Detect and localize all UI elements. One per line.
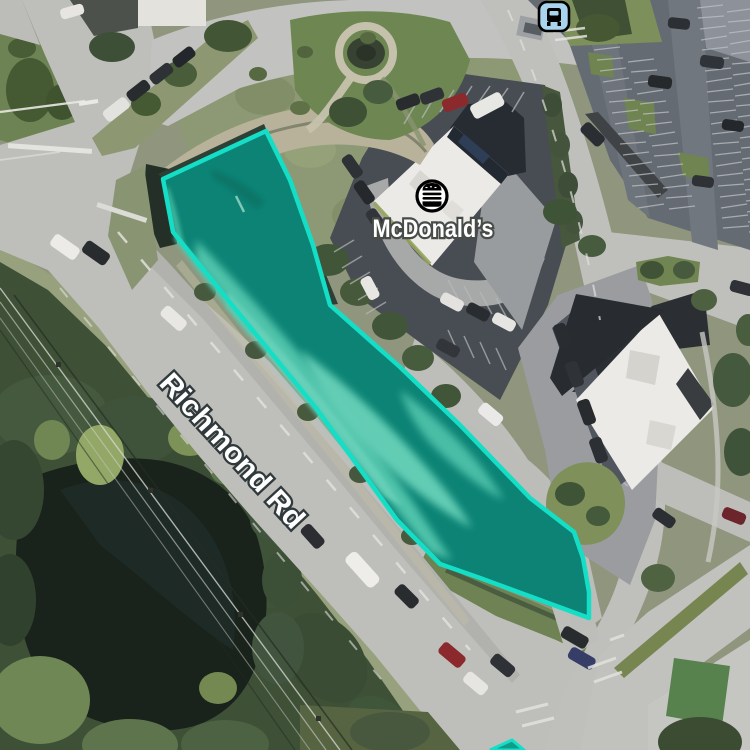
svg-text:McDonald’s: McDonald’s xyxy=(373,215,494,243)
